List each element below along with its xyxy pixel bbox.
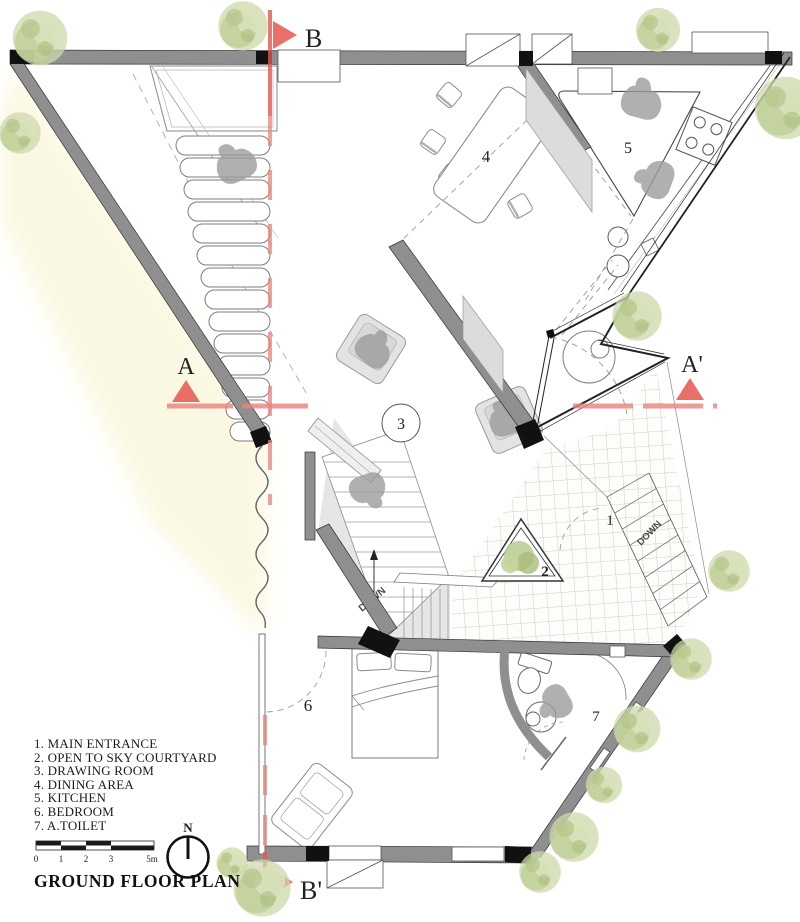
- legend: 1. MAIN ENTRANCE 2. OPEN TO SKY COURTYAR…: [34, 737, 217, 832]
- lounge-chair: [269, 761, 355, 852]
- scale-tick: 0: [34, 854, 39, 864]
- tree-icon: [612, 291, 661, 340]
- stove-icon: [676, 107, 732, 165]
- tree-icon: [586, 767, 622, 803]
- scale-tick: 3: [109, 854, 114, 864]
- room-label-2: 2: [541, 564, 549, 580]
- tree-icon: [614, 706, 661, 753]
- side-table: [563, 331, 615, 383]
- room-label-6: 6: [304, 696, 313, 715]
- legend-item: 7. A.TOILET: [34, 819, 217, 833]
- tree-icon: [670, 638, 712, 680]
- page-title: GROUND FLOOR PLAN: [34, 871, 241, 892]
- scale-bar: 0 1 2 3 5m: [34, 841, 158, 864]
- tree-icon: [0, 112, 41, 154]
- section-arrow-b: [273, 21, 297, 49]
- wall-pier: [305, 452, 315, 540]
- floor-plan-page: DOWN: [0, 0, 800, 922]
- room-label-7: 7: [592, 709, 600, 725]
- tree-icon: [636, 8, 680, 52]
- room-label-4: 4: [482, 147, 491, 166]
- legend-item: 4. DINING AREA: [34, 778, 217, 792]
- room-label-5: 5: [624, 140, 632, 157]
- section-label-a: A: [177, 354, 195, 380]
- room-label-1: 1: [606, 513, 614, 529]
- section-label-a-prime: A': [681, 352, 703, 378]
- tree-icon: [519, 851, 561, 893]
- bed: [352, 648, 438, 758]
- section-label-b-prime: B': [300, 876, 322, 905]
- legend-item: 3. DRAWING ROOM: [34, 764, 217, 778]
- wall-top: [10, 50, 792, 65]
- legend-item: 6. BEDROOM: [34, 805, 217, 819]
- tree-icon: [218, 1, 267, 50]
- scale-tick: 2: [84, 854, 89, 864]
- tree-icon: [708, 550, 750, 592]
- tree-icon: [549, 812, 598, 861]
- tree-icon: [13, 11, 68, 66]
- legend-item: 2. OPEN TO SKY COURTYARD: [34, 751, 217, 765]
- legend-item: 5. KITCHEN: [34, 791, 217, 805]
- sink-icon: [608, 227, 628, 247]
- legend-item: 1. MAIN ENTRANCE: [34, 737, 217, 751]
- scale-tick: 5m: [146, 854, 158, 864]
- section-arrow-a-prime: [676, 378, 704, 400]
- wall-slab: [463, 296, 503, 393]
- room-label-3: 3: [397, 416, 405, 433]
- section-label-b: B: [305, 24, 322, 53]
- scale-tick: 1: [59, 854, 64, 864]
